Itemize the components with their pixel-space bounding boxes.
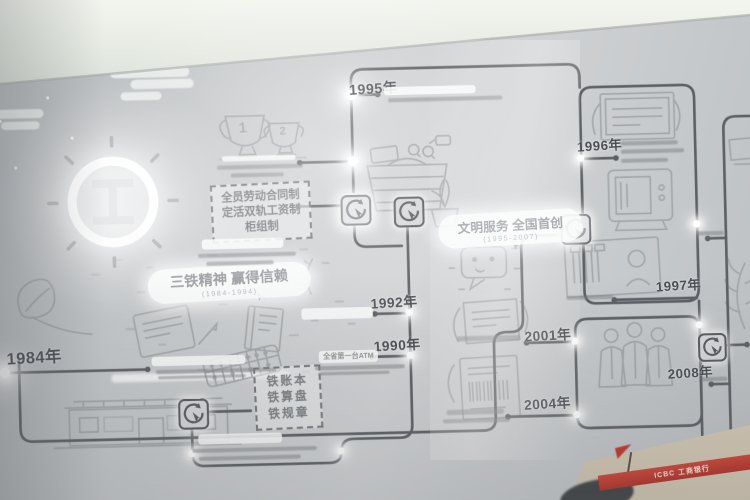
year-label-1984: 1984年 [6, 342, 63, 370]
caption-blur [697, 231, 724, 236]
callout-iron: 铁账本 铁算盘 铁规章 [253, 364, 323, 431]
touch-point-icon [178, 399, 209, 430]
notebook-art [133, 300, 220, 358]
touch-point-icon [393, 196, 424, 227]
year-label-1990: 1990年 [373, 332, 421, 355]
exhibition-wall-photo: 1984年 1995年 1992年 1990年 1996年 1997年 2001… [0, 0, 750, 500]
caption-atm-1990: 全省第一台ATM [319, 350, 378, 364]
trophy-second-number: 2 [279, 125, 286, 138]
leaf-icon [17, 278, 91, 336]
touch-point-icon [698, 333, 727, 362]
year-label-1997: 1997年 [655, 274, 701, 296]
caption-blur [701, 377, 728, 382]
trophy-first-number: 1 [238, 119, 247, 136]
year-label-2004: 2004年 [517, 391, 571, 415]
icbc-logo [45, 134, 181, 270]
book-art [245, 306, 284, 352]
trophies-art [219, 115, 306, 160]
television-art [608, 169, 673, 231]
callout-iron-line3: 铁规章 [260, 405, 318, 424]
caption-blur [301, 307, 373, 320]
caption-blur [198, 432, 282, 444]
ceiling-edge [0, 0, 750, 100]
caption-blur [202, 238, 284, 250]
callout-contract: 全员劳动合同制 定活双轨工资制 柜组制 [210, 181, 313, 244]
year-label-1992: 1992年 [370, 290, 418, 313]
year-label-1996: 1996年 [576, 134, 622, 156]
year-label-2001: 2001年 [518, 322, 572, 346]
touch-point-icon [340, 195, 371, 226]
